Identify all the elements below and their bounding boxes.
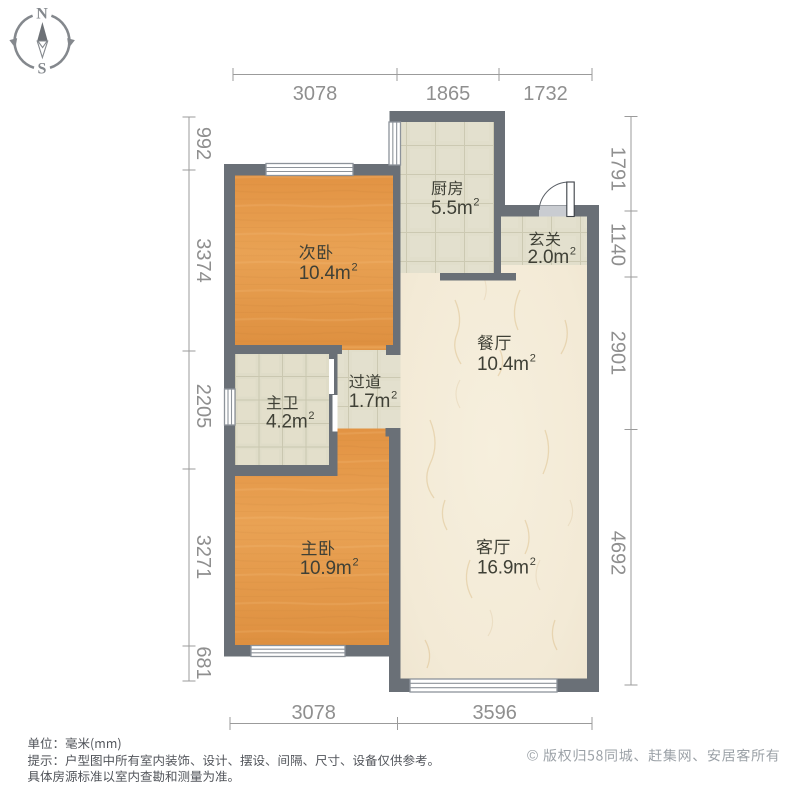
svg-text:N: N: [36, 6, 48, 23]
svg-text:10.4m: 10.4m: [477, 354, 529, 375]
svg-text:3374: 3374: [192, 238, 214, 283]
svg-text:4692: 4692: [607, 531, 629, 576]
svg-text:3078: 3078: [293, 83, 338, 105]
svg-text:16.9m: 16.9m: [477, 558, 529, 579]
svg-text:2: 2: [352, 262, 358, 274]
svg-text:992: 992: [192, 127, 214, 160]
svg-text:©: ©: [527, 748, 538, 765]
svg-text:3078: 3078: [291, 702, 336, 724]
svg-text:2901: 2901: [607, 331, 629, 376]
svg-text:3596: 3596: [472, 702, 517, 724]
svg-text:2: 2: [308, 410, 314, 422]
svg-text:2: 2: [530, 556, 536, 568]
svg-text:4.2m: 4.2m: [266, 412, 307, 433]
svg-text:1140: 1140: [607, 223, 629, 266]
svg-text:1865: 1865: [426, 83, 471, 105]
svg-text:10.9m: 10.9m: [300, 558, 352, 579]
svg-text:2205: 2205: [192, 384, 214, 429]
svg-text:681: 681: [192, 646, 214, 679]
svg-text:S: S: [38, 61, 47, 78]
svg-text:2.0m: 2.0m: [528, 247, 569, 268]
svg-text:2: 2: [473, 197, 479, 209]
svg-text:10.4m: 10.4m: [299, 263, 351, 284]
svg-text:1732: 1732: [523, 83, 568, 105]
svg-text:2: 2: [530, 353, 536, 365]
svg-text:2: 2: [353, 557, 359, 569]
svg-text:5.5m: 5.5m: [431, 198, 472, 219]
svg-text:1.7m: 1.7m: [349, 391, 390, 412]
svg-text:1791: 1791: [607, 147, 629, 192]
svg-text:2: 2: [391, 390, 397, 402]
svg-text:3271: 3271: [192, 535, 214, 580]
svg-text:2: 2: [570, 246, 576, 258]
